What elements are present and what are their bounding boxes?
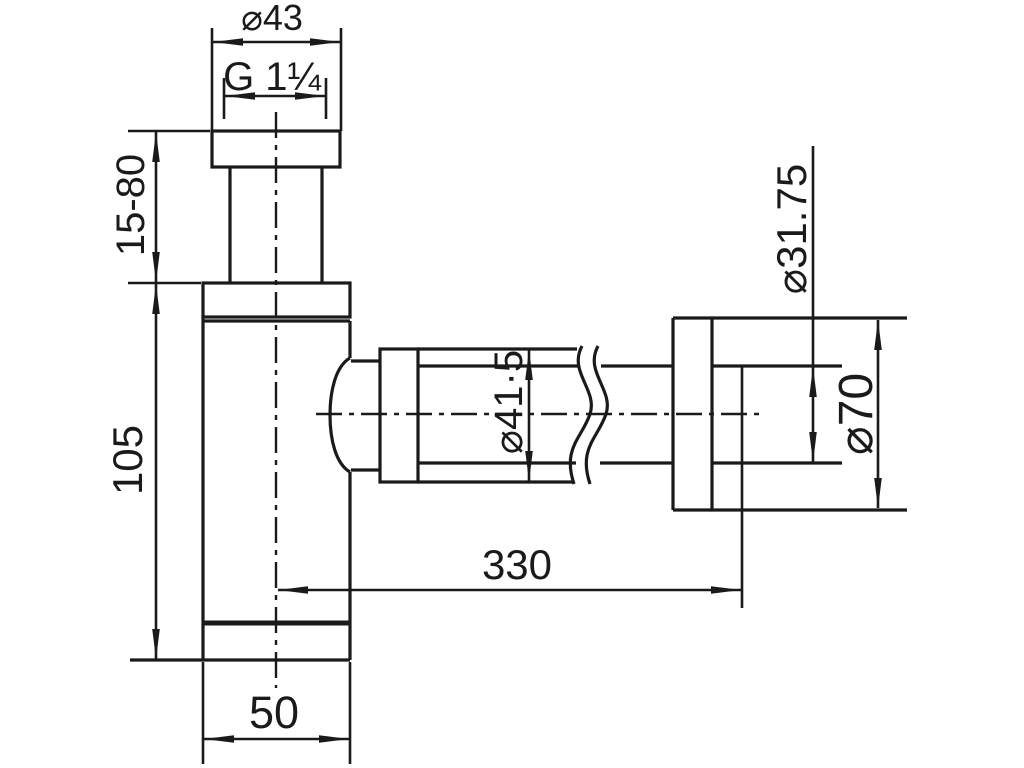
bottle-trap-technical-drawing: ⌀43 G 1¼ 15-80 105 ⌀41·5 ⌀31.75 ⌀70 3 [0, 0, 1024, 768]
dim-label-thread: G 1¼ [223, 55, 321, 99]
dim-label-flange-diameter: ⌀70 [830, 373, 883, 455]
dim-label-body-width: 50 [249, 687, 299, 738]
dim-label-top-diameter: ⌀43 [241, 0, 303, 38]
dim-label-body-height: 105 [104, 425, 151, 495]
dim-flange-diameter: ⌀70 [830, 320, 883, 508]
dim-thread: G 1¼ [223, 55, 326, 119]
dim-inlet-height: 15-80 [109, 131, 210, 283]
dim-label-inlet-height: 15-80 [109, 154, 153, 256]
technical-drawing-page: ⌀43 G 1¼ 15-80 105 ⌀41·5 ⌀31.75 ⌀70 3 [0, 0, 1024, 768]
trap-body [130, 283, 350, 660]
dim-label-nut-diameter: ⌀41·5 [487, 350, 531, 454]
dim-nut-diameter: ⌀41·5 [487, 350, 531, 481]
dim-label-wall-pipe-diameter: ⌀31.75 [768, 164, 815, 294]
ball-joint-nut [330, 349, 418, 482]
dim-body-height: 105 [104, 284, 156, 659]
dim-wall-pipe-diameter: ⌀31.75 [768, 146, 815, 462]
dim-label-horizontal-length: 330 [482, 541, 552, 588]
